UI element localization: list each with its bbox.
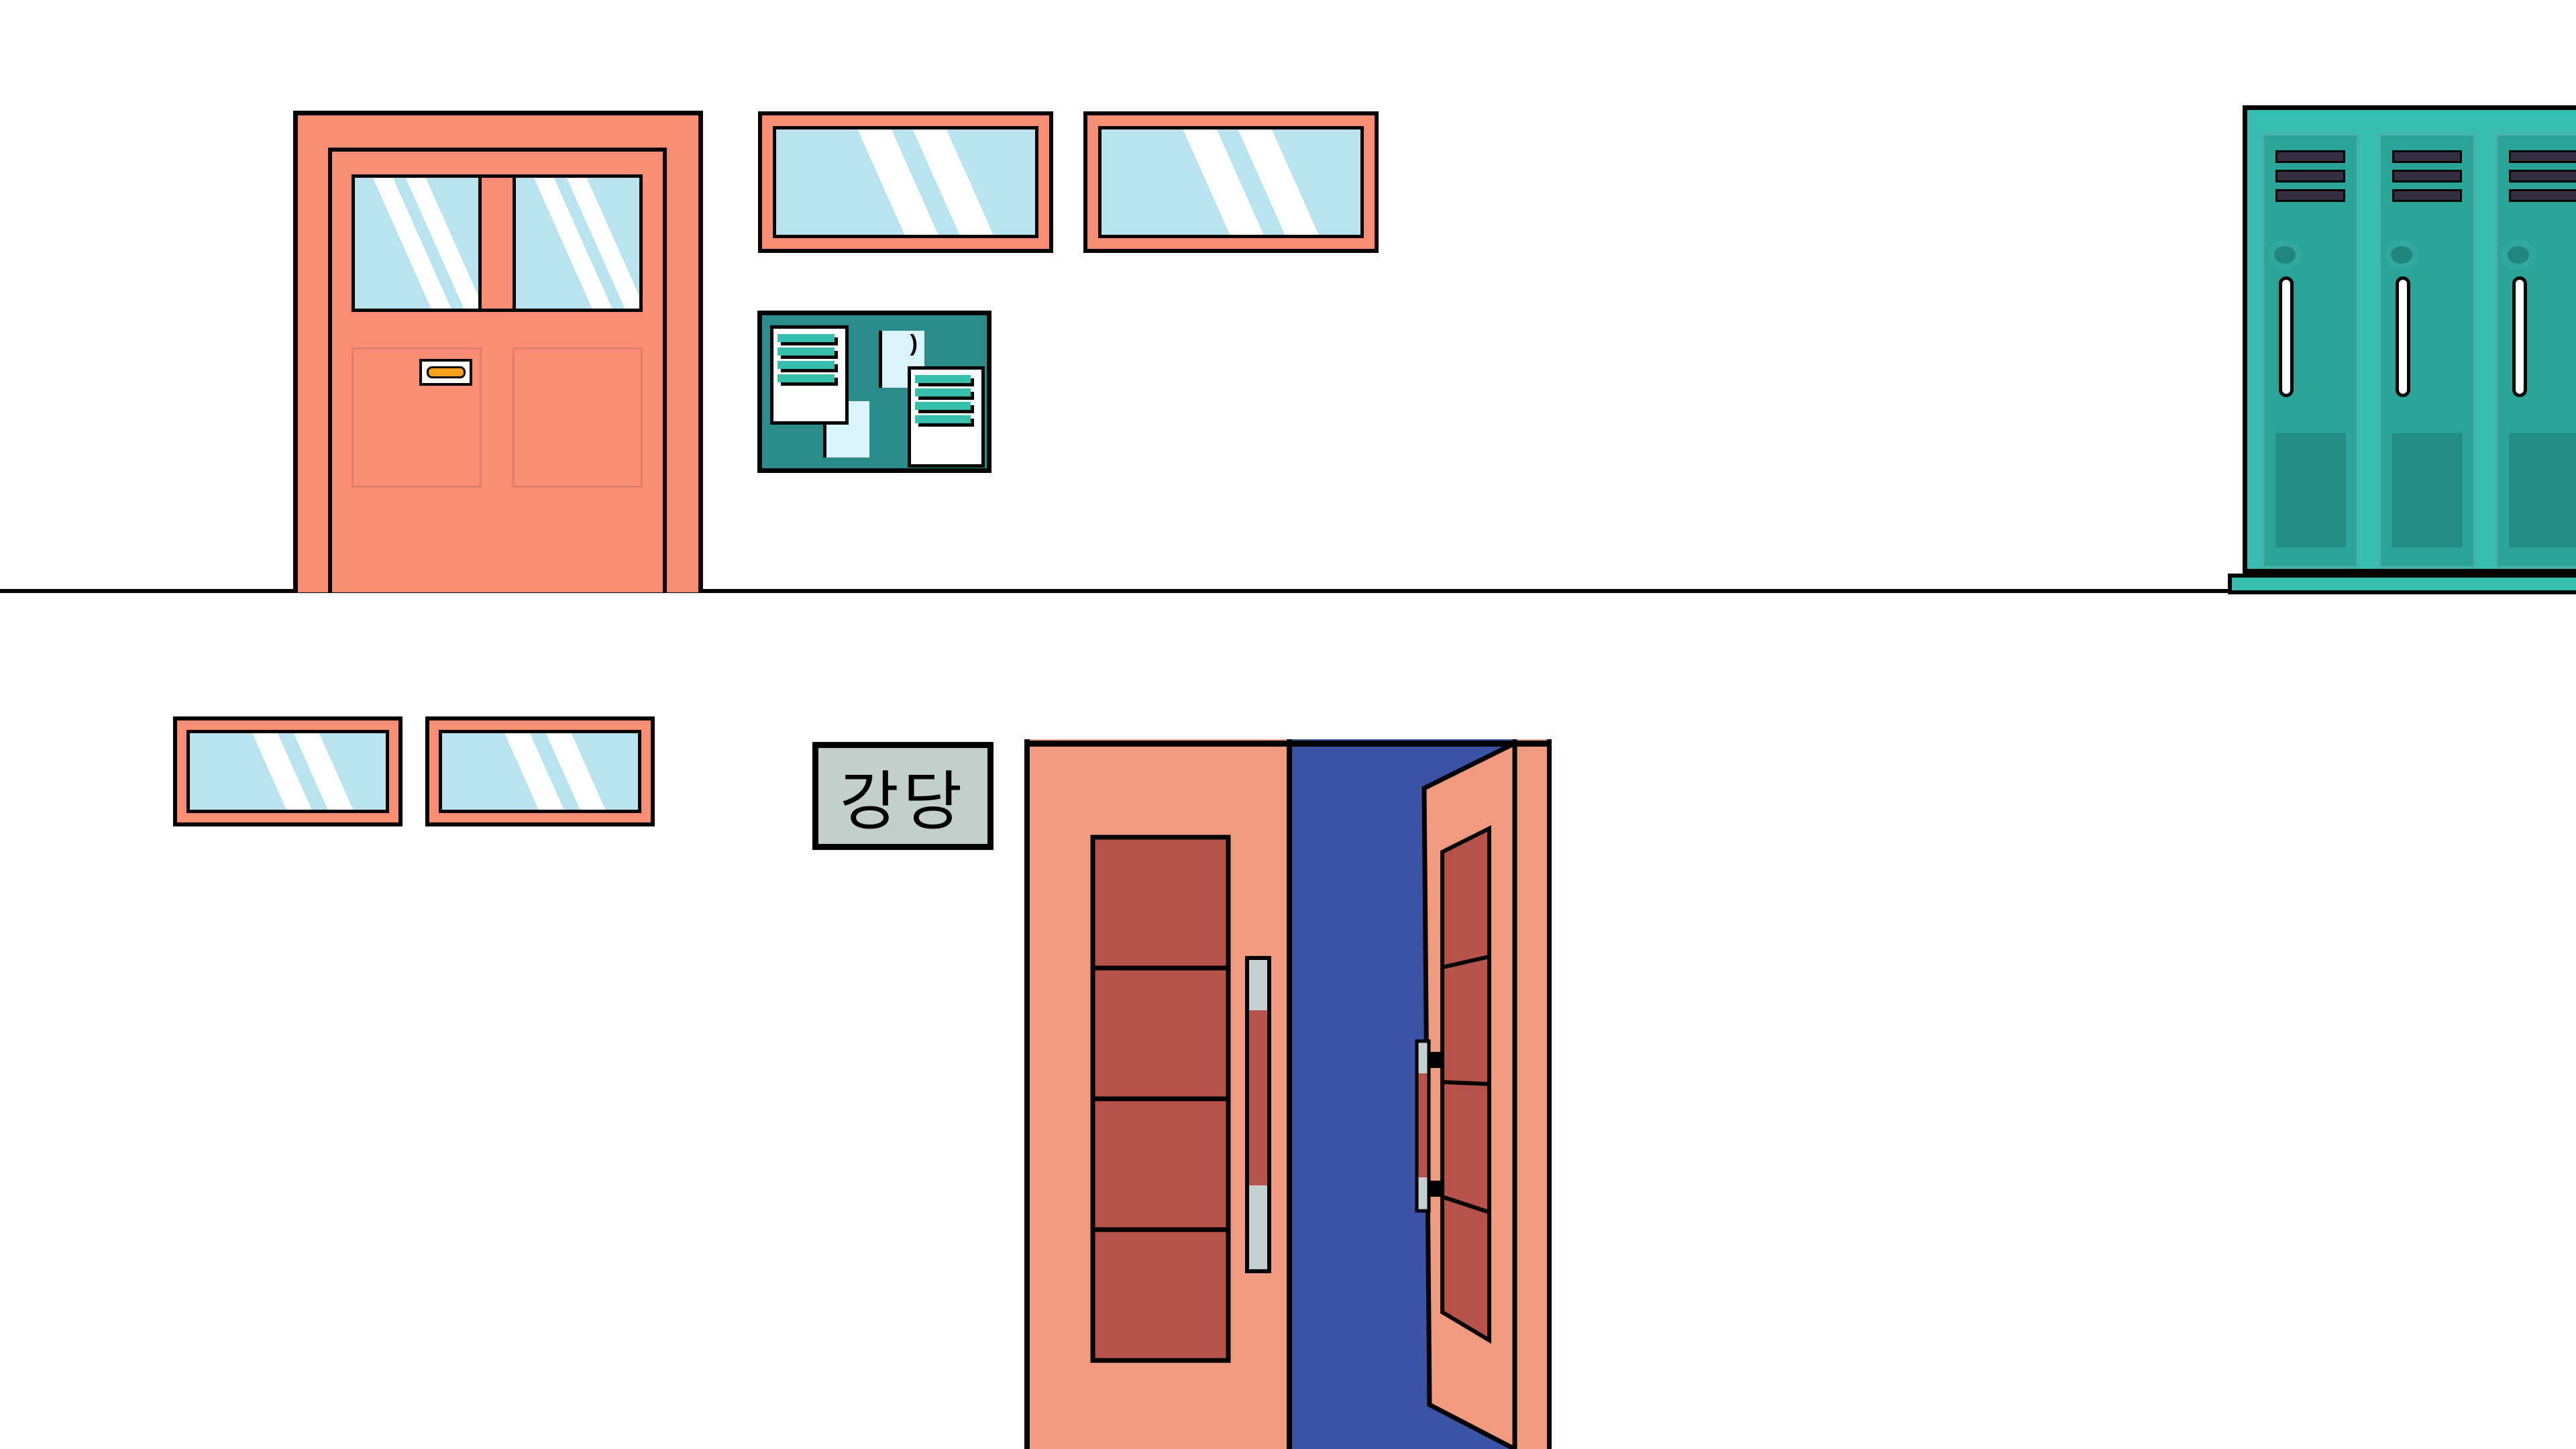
locker-handle xyxy=(2396,276,2410,397)
door-nameplate-bar xyxy=(427,366,466,378)
note-text-line xyxy=(777,334,835,342)
locker-lower-panel xyxy=(2275,433,2346,547)
locker-1[interactable] xyxy=(2261,133,2359,569)
locker-vent xyxy=(2275,150,2345,163)
upper-hall-window-2 xyxy=(1083,111,1379,253)
window-glass xyxy=(1098,126,1364,238)
note-text-line xyxy=(915,375,971,383)
lockers-unit xyxy=(2228,105,2576,594)
auditorium-sign-label: 강당 xyxy=(840,749,967,843)
locker-lock xyxy=(2384,240,2419,270)
open-handle-cap-top xyxy=(1417,1041,1429,1073)
locker-vent xyxy=(2392,189,2462,202)
locker-handle xyxy=(2279,276,2294,397)
door-window-bottom-rail xyxy=(352,309,643,312)
classroom-door-panel-right xyxy=(513,347,643,488)
note-text-line xyxy=(915,402,971,410)
window-glass xyxy=(186,730,389,813)
note-text-line xyxy=(777,361,835,369)
locker-lock xyxy=(2501,240,2536,270)
classroom-door-window-right xyxy=(513,174,643,312)
open-leaf-panel-divider xyxy=(1442,1082,1489,1084)
locker-2[interactable] xyxy=(2378,133,2476,569)
upper-hall-window-1 xyxy=(758,111,1053,253)
door-frame-right xyxy=(1547,739,1552,1449)
window-glass xyxy=(773,126,1038,238)
locker-vent xyxy=(2509,150,2576,163)
locker-3[interactable] xyxy=(2495,133,2576,569)
door-window-top-rail xyxy=(352,174,643,178)
classroom-door[interactable] xyxy=(293,111,703,592)
locker-handle xyxy=(2512,276,2527,397)
locker-vent xyxy=(2392,150,2462,163)
closed-handle-cap-top xyxy=(1247,958,1269,1010)
closed-handle-cap-bottom xyxy=(1247,1185,1269,1271)
note-text-line xyxy=(915,388,971,396)
bulletin-note-white-1[interactable] xyxy=(770,325,849,425)
door-frame-left xyxy=(1024,739,1030,1449)
note-text-line xyxy=(777,347,835,356)
open-handle-cap-bottom xyxy=(1417,1177,1429,1211)
bulletin-board[interactable]: ) xyxy=(757,311,991,473)
locker-lock-keyhole xyxy=(2274,246,2296,264)
locker-vent xyxy=(2509,189,2576,202)
note-text-line xyxy=(915,415,971,423)
locker-lock-keyhole xyxy=(2508,246,2529,264)
locker-vent xyxy=(2509,170,2576,182)
locker-vent xyxy=(2275,189,2345,202)
locker-lower-panel xyxy=(2509,433,2576,547)
door-nameplate xyxy=(419,359,472,386)
locker-vent xyxy=(2275,170,2345,182)
locker-base xyxy=(2228,574,2576,594)
school-hallway-scene: ) xyxy=(0,0,2576,1449)
auditorium-door-jamb xyxy=(1515,739,1552,1449)
leaf-divider-line xyxy=(1287,739,1292,1449)
locker-vent xyxy=(2392,170,2462,182)
auditorium-sign: 강당 xyxy=(812,742,994,850)
locker-lock xyxy=(2267,240,2302,270)
classroom-door-window-left xyxy=(352,174,482,312)
window-glass xyxy=(439,730,641,813)
locker-lower-panel xyxy=(2392,433,2463,547)
bulletin-note-white-2[interactable] xyxy=(908,366,985,468)
lower-hall-window-1 xyxy=(173,716,402,826)
note-text-line xyxy=(777,374,835,382)
closed-handle-grip xyxy=(1247,1010,1269,1185)
door-frame-top xyxy=(1024,741,1552,747)
locker-lock-keyhole xyxy=(2391,246,2412,264)
lower-hall-window-2 xyxy=(425,716,655,826)
open-handle-grip xyxy=(1417,1073,1429,1177)
auditorium-door-unit xyxy=(1024,739,1552,1449)
locker-cabinet xyxy=(2243,105,2576,574)
pin-mark-icon: ) xyxy=(910,332,918,355)
